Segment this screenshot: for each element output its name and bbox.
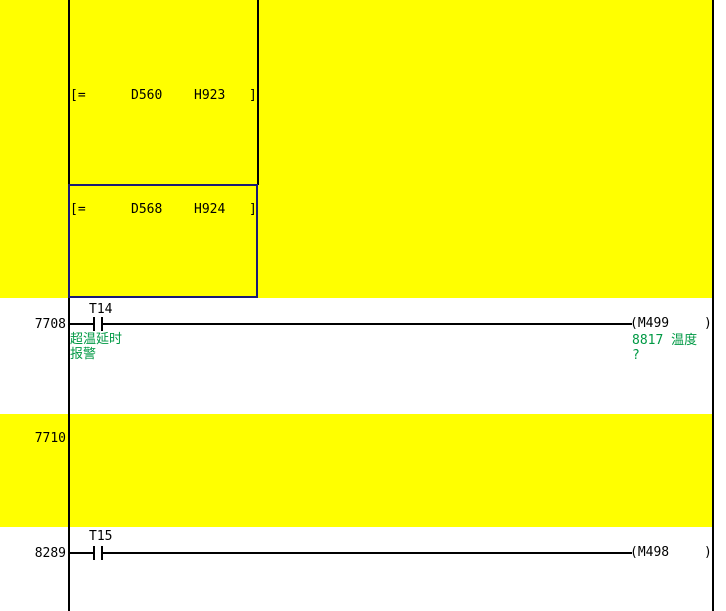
instruction-block-boundary-line [257, 0, 259, 185]
operand-1: D560 [131, 88, 162, 103]
close-bracket-icon: ] [249, 88, 257, 103]
close-bracket-icon: ] [249, 202, 257, 217]
ladder-editor-canvas: [= D560 H923 ] [= D568 H924 ] 7708 T14 超… [0, 0, 726, 611]
device-comment: 8817 温度 [632, 333, 697, 348]
compare-op-icon: [= [70, 88, 86, 103]
selection-cursor[interactable] [68, 184, 258, 298]
step-number: 8289 [0, 546, 66, 561]
highlight-middle-region [0, 414, 713, 527]
coil-label: (M499 [630, 316, 669, 331]
operand-2: H923 [194, 88, 225, 103]
rung-wire [103, 552, 632, 554]
compare-op-icon: [= [70, 202, 86, 217]
step-number: 7710 [0, 431, 66, 446]
coil-close-paren-icon: ) [704, 316, 712, 331]
contact-bar-icon [93, 546, 95, 560]
device-comment: ? [632, 348, 640, 363]
right-power-rail [712, 0, 714, 611]
device-comment: 报警 [70, 347, 96, 362]
operand-1: D568 [131, 202, 162, 217]
coil-close-paren-icon: ) [704, 545, 712, 560]
coil-label: (M498 [630, 545, 669, 560]
operand-2: H924 [194, 202, 225, 217]
device-comment: 超温延时 [70, 332, 122, 347]
step-number: 7708 [0, 317, 66, 332]
contact-bar-icon [93, 317, 95, 331]
contact-label: T15 [89, 529, 112, 544]
rung-wire [103, 323, 632, 325]
